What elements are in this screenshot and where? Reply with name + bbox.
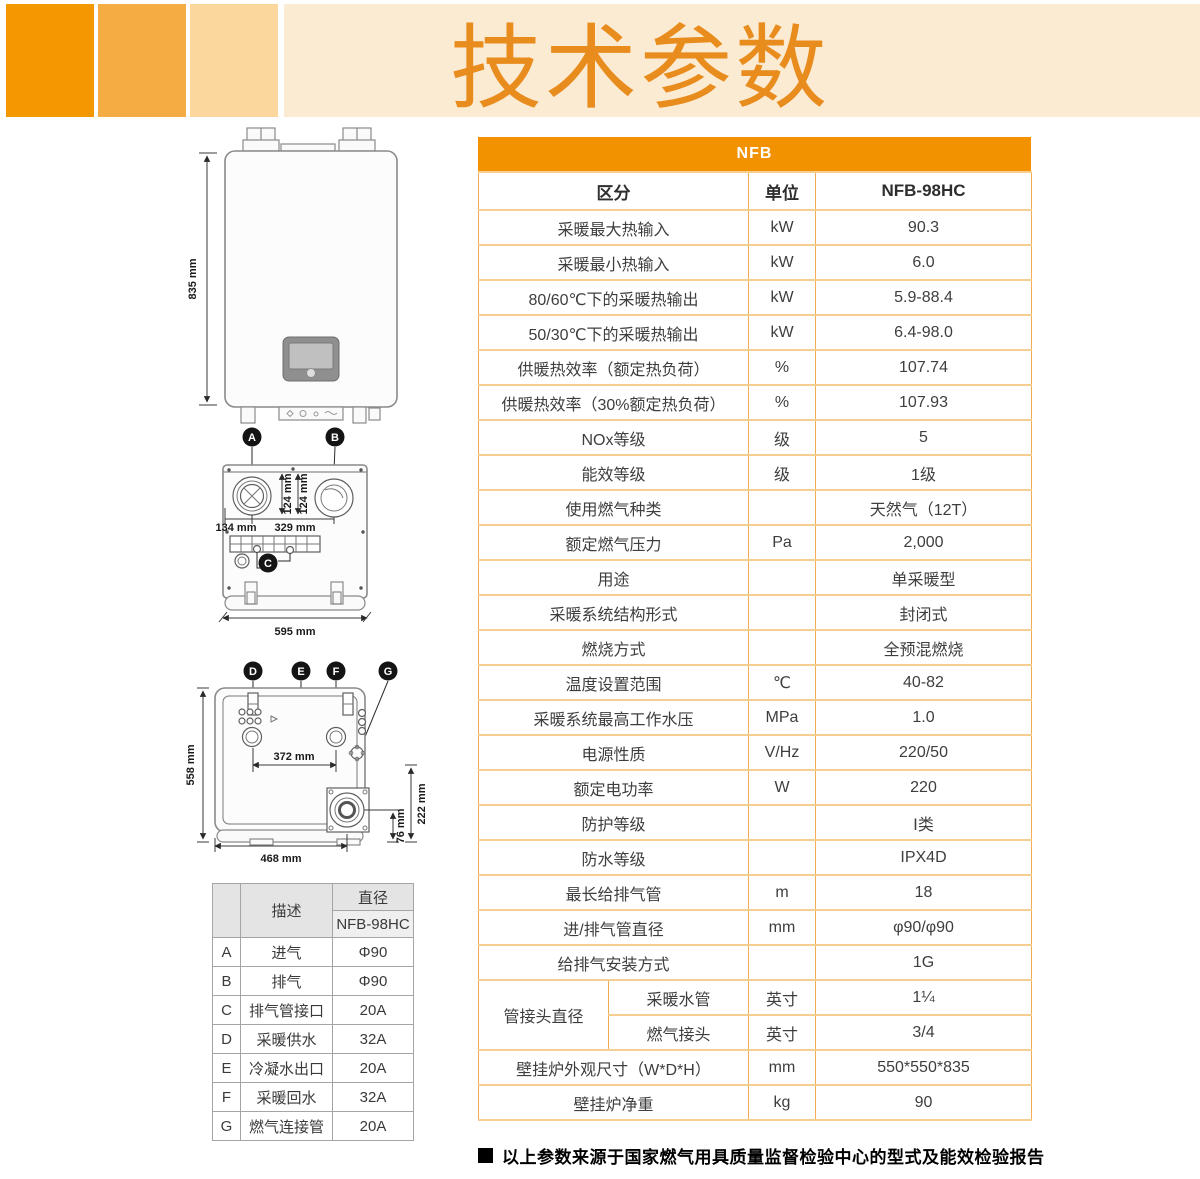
connection-row: D采暖供水32A xyxy=(213,1025,414,1054)
spec-label-cell: 用途 xyxy=(479,560,749,595)
spec-row: 温度设置范围℃40-82 xyxy=(479,665,1032,700)
spec-unit-cell: kg xyxy=(749,1085,816,1120)
spec-row: 80/60℃下的采暖热输出kW5.9-88.4 xyxy=(479,280,1032,315)
conn-desc-cell: 冷凝水出口 xyxy=(241,1054,333,1083)
spec-row: 额定电功率W220 xyxy=(479,770,1032,805)
spec-unit-cell: MPa xyxy=(749,700,816,735)
intake-port xyxy=(233,477,271,515)
spec-label-cell: 温度设置范围 xyxy=(479,665,749,700)
spec-unit-cell: mm xyxy=(749,910,816,945)
exhaust-port xyxy=(315,479,353,517)
spec-label-cell: 供暖热效率（30%额定热负荷） xyxy=(479,385,749,420)
spec-row: 供暖热效率（额定热负荷）%107.74 xyxy=(479,350,1032,385)
spec-value-cell: φ90/φ90 xyxy=(816,910,1032,945)
marker-f-badge: F xyxy=(327,662,346,681)
conn-value-cell: 32A xyxy=(333,1025,414,1054)
conn-header-desc: 描述 xyxy=(241,884,333,938)
conn-key-cell: B xyxy=(213,967,241,996)
spec-row: 采暖最大热输入kW90.3 xyxy=(479,210,1032,245)
conn-desc-cell: 燃气连接管 xyxy=(241,1112,333,1141)
conn-header-model: NFB-98HC xyxy=(333,911,414,938)
spec-row: 50/30℃下的采暖热输出kW6.4-98.0 xyxy=(479,315,1032,350)
spec-value-cell: 6.0 xyxy=(816,245,1032,280)
spec-label-cell: 使用燃气种类 xyxy=(479,490,749,525)
spec-unit-cell xyxy=(749,945,816,980)
spec-unit-cell: kW xyxy=(749,280,816,315)
spec-label-cell: 能效等级 xyxy=(479,455,749,490)
marker-b-badge: B xyxy=(326,428,345,447)
spec-row: 防水等级IPX4D xyxy=(479,840,1032,875)
spec-label-cell: 采暖最小热输入 xyxy=(479,245,749,280)
spec-label-cell: 采暖系统最高工作水压 xyxy=(479,700,749,735)
svg-text:G: G xyxy=(384,666,393,678)
conn-key-cell: G xyxy=(213,1112,241,1141)
spec-group-cell: 管接头直径 xyxy=(479,980,609,1050)
spec-unit-cell xyxy=(749,630,816,665)
footer-note-text: 以上参数来源于国家燃气用具质量监督检验中心的型式及能效检验报告 xyxy=(502,1143,1045,1168)
spec-label-cell: 最长给排气管 xyxy=(479,875,749,910)
condensate-assembly xyxy=(327,788,369,832)
connection-row: C排气管接口20A xyxy=(213,996,414,1025)
spec-row: 管接头直径采暖水管英寸1¼ xyxy=(479,980,1032,1015)
bottom-dim-222: 222 mm xyxy=(416,783,428,824)
spec-unit-cell: ℃ xyxy=(749,665,816,700)
svg-text:D: D xyxy=(249,666,257,678)
spec-label-cell: 进/排气管直径 xyxy=(479,910,749,945)
spec-table-container: NFB 区分 单位 NFB-98HC 采暖最大热输入kW90.3采暖最小热输入k… xyxy=(478,137,1031,1121)
spec-row: 使用燃气种类天然气（12T） xyxy=(479,490,1032,525)
conn-key-cell: F xyxy=(213,1083,241,1112)
display-screen xyxy=(289,343,333,369)
conn-desc-cell: 采暖回水 xyxy=(241,1083,333,1112)
spec-unit-cell: kW xyxy=(749,245,816,280)
conn-header-diameter: 直径 xyxy=(333,884,414,911)
spec-label-cell: 防水等级 xyxy=(479,840,749,875)
spec-label-cell: 采暖系统结构形式 xyxy=(479,595,749,630)
spec-row: 供暖热效率（30%额定热负荷）%107.93 xyxy=(479,385,1032,420)
spec-unit-cell: 级 xyxy=(749,420,816,455)
spec-label-cell: 采暖水管 xyxy=(609,980,749,1015)
spec-label-cell: 防护等级 xyxy=(479,805,749,840)
spec-header-model: NFB-98HC xyxy=(816,172,1032,210)
spec-header-unit: 单位 xyxy=(749,172,816,210)
spec-row: 壁挂炉净重kg90 xyxy=(479,1085,1032,1120)
spec-row: 进/排气管直径mmφ90/φ90 xyxy=(479,910,1032,945)
panel-button xyxy=(307,369,316,378)
front-view-diagram: 835 mm A B xyxy=(187,128,397,447)
svg-text:F: F xyxy=(333,666,340,678)
spec-label-cell: 80/60℃下的采暖热输出 xyxy=(479,280,749,315)
top-view-diagram: 124 mm 124 mm 134 mm 329 mm xyxy=(216,447,371,638)
connection-row: A进气Φ90 xyxy=(213,938,414,967)
spec-label-cell: 燃气接头 xyxy=(609,1015,749,1050)
spec-label-cell: 电源性质 xyxy=(479,735,749,770)
spec-value-cell: IPX4D xyxy=(816,840,1032,875)
conn-key-cell: A xyxy=(213,938,241,967)
spec-unit-cell: % xyxy=(749,350,816,385)
spec-value-cell: 1¼ xyxy=(816,980,1032,1015)
page: 技术参数 xyxy=(0,0,1200,1179)
spec-row: 电源性质V/Hz220/50 xyxy=(479,735,1032,770)
bottom-view-diagram: D E F G xyxy=(185,662,428,866)
spec-label-cell: 壁挂炉外观尺寸（W*D*H） xyxy=(479,1050,749,1085)
spec-row: 最长给排气管m18 xyxy=(479,875,1032,910)
spec-label-cell: 额定燃气压力 xyxy=(479,525,749,560)
spec-header-category: 区分 xyxy=(479,172,749,210)
connection-row: F采暖回水32A xyxy=(213,1083,414,1112)
spec-unit-cell: % xyxy=(749,385,816,420)
spec-value-cell: 单采暖型 xyxy=(816,560,1032,595)
spec-value-cell: 3/4 xyxy=(816,1015,1032,1050)
spec-row: 防护等级Ⅰ类 xyxy=(479,805,1032,840)
spec-value-cell: 5.9-88.4 xyxy=(816,280,1032,315)
footer-note: 以上参数来源于国家燃气用具质量监督检验中心的型式及能效检验报告 xyxy=(478,1143,1045,1168)
conn-value-cell: 20A xyxy=(333,996,414,1025)
connection-table-container: 描述 直径 NFB-98HC A进气Φ90B排气Φ90C排气管接口20AD采暖供… xyxy=(212,883,413,1141)
marker-c-badge: C xyxy=(259,554,278,573)
spec-value-cell: 107.74 xyxy=(816,350,1032,385)
svg-text:B: B xyxy=(331,432,339,444)
spec-unit-cell xyxy=(749,490,816,525)
spec-unit-cell: W xyxy=(749,770,816,805)
spec-unit-cell: 级 xyxy=(749,455,816,490)
svg-text:A: A xyxy=(248,432,256,444)
marker-d-badge: D xyxy=(244,662,263,681)
spec-value-cell: 107.93 xyxy=(816,385,1032,420)
top-dim-595: 595 mm xyxy=(275,626,316,638)
marker-e-badge: E xyxy=(292,662,311,681)
bottom-dim-558: 558 mm xyxy=(185,744,197,785)
spec-label-cell: 采暖最大热输入 xyxy=(479,210,749,245)
spec-label-cell: 额定电功率 xyxy=(479,770,749,805)
connection-table: 描述 直径 NFB-98HC A进气Φ90B排气Φ90C排气管接口20AD采暖供… xyxy=(212,883,414,1141)
spec-row: NOx等级级5 xyxy=(479,420,1032,455)
spec-row: 采暖最小热输入kW6.0 xyxy=(479,245,1032,280)
spec-value-cell: 90.3 xyxy=(816,210,1032,245)
page-title: 技术参数 xyxy=(430,4,850,117)
conn-key-cell: C xyxy=(213,996,241,1025)
spec-value-cell: 封闭式 xyxy=(816,595,1032,630)
spec-row: 给排气安装方式1G xyxy=(479,945,1032,980)
spec-label-cell: 供暖热效率（额定热负荷） xyxy=(479,350,749,385)
spec-label-cell: 壁挂炉净重 xyxy=(479,1085,749,1120)
conn-desc-cell: 排气 xyxy=(241,967,333,996)
spec-unit-cell: mm xyxy=(749,1050,816,1085)
spec-value-cell: 6.4-98.0 xyxy=(816,315,1032,350)
spec-row: 燃烧方式全预混燃烧 xyxy=(479,630,1032,665)
return-port xyxy=(327,728,346,747)
conn-desc-cell: 排气管接口 xyxy=(241,996,333,1025)
spec-unit-cell: Pa xyxy=(749,525,816,560)
top-dim-134: 134 mm xyxy=(216,522,257,534)
banner-block-dark xyxy=(6,4,94,117)
connection-table-body: A进气Φ90B排气Φ90C排气管接口20AD采暖供水32AE冷凝水出口20AF采… xyxy=(213,938,414,1141)
spec-value-cell: 5 xyxy=(816,420,1032,455)
spec-value-cell: 40-82 xyxy=(816,665,1032,700)
connection-row: B排气Φ90 xyxy=(213,967,414,996)
conn-value-cell: 20A xyxy=(333,1112,414,1141)
banner-block-mid xyxy=(98,4,186,117)
conn-desc-cell: 采暖供水 xyxy=(241,1025,333,1054)
spec-value-cell: 天然气（12T） xyxy=(816,490,1032,525)
marker-g-badge: G xyxy=(379,662,398,681)
spec-table: 区分 单位 NFB-98HC 采暖最大热输入kW90.3采暖最小热输入kW6.0… xyxy=(478,171,1032,1121)
top-dim-329: 329 mm xyxy=(275,522,316,534)
conn-value-cell: Φ90 xyxy=(333,938,414,967)
spec-row: 能效等级级1级 xyxy=(479,455,1032,490)
spec-row: 采暖系统最高工作水压MPa1.0 xyxy=(479,700,1032,735)
bottom-dim-468: 468 mm xyxy=(261,853,302,865)
spec-value-cell: 1级 xyxy=(816,455,1032,490)
spec-unit-cell: 英寸 xyxy=(749,980,816,1015)
spec-value-cell: Ⅰ类 xyxy=(816,805,1032,840)
spec-row: 额定燃气压力Pa2,000 xyxy=(479,525,1032,560)
banner-block-light xyxy=(190,4,278,117)
front-height-dim: 835 mm xyxy=(187,258,199,299)
conn-header-blank xyxy=(213,884,241,938)
conn-value-cell: 32A xyxy=(333,1083,414,1112)
vent-grille xyxy=(230,536,320,552)
spec-table-body: 采暖最大热输入kW90.3采暖最小热输入kW6.080/60℃下的采暖热输出kW… xyxy=(479,210,1032,1120)
spec-value-cell: 1.0 xyxy=(816,700,1032,735)
conn-key-cell: E xyxy=(213,1054,241,1083)
conn-desc-cell: 进气 xyxy=(241,938,333,967)
spec-unit-cell: V/Hz xyxy=(749,735,816,770)
drain-fitting xyxy=(235,554,249,568)
spec-row: 采暖系统结构形式封闭式 xyxy=(479,595,1032,630)
svg-text:E: E xyxy=(297,666,304,678)
spec-unit-cell: m xyxy=(749,875,816,910)
svg-text:C: C xyxy=(264,558,272,570)
top-dim-124b: 124 mm xyxy=(298,473,310,514)
spec-unit-cell xyxy=(749,805,816,840)
conn-value-cell: Φ90 xyxy=(333,967,414,996)
connection-row: E冷凝水出口20A xyxy=(213,1054,414,1083)
spec-row: 用途单采暖型 xyxy=(479,560,1032,595)
spec-label-cell: 燃烧方式 xyxy=(479,630,749,665)
spec-value-cell: 220/50 xyxy=(816,735,1032,770)
spec-label-cell: 给排气安装方式 xyxy=(479,945,749,980)
spec-value-cell: 220 xyxy=(816,770,1032,805)
marker-a-badge: A xyxy=(243,428,262,447)
spec-unit-cell: 英寸 xyxy=(749,1015,816,1050)
top-dim-124a: 124 mm xyxy=(282,473,294,514)
spec-value-cell: 18 xyxy=(816,875,1032,910)
spec-value-cell: 90 xyxy=(816,1085,1032,1120)
spec-unit-cell xyxy=(749,840,816,875)
spec-table-band: NFB xyxy=(478,137,1031,171)
connector-cluster-right xyxy=(359,710,366,735)
supply-port xyxy=(243,728,262,747)
connection-row: G燃气连接管20A xyxy=(213,1112,414,1141)
spec-unit-cell: kW xyxy=(749,210,816,245)
note-bullet-icon xyxy=(478,1148,493,1163)
spec-label-cell: 50/30℃下的采暖热输出 xyxy=(479,315,749,350)
spec-value-cell: 550*550*835 xyxy=(816,1050,1032,1085)
spec-value-cell: 2,000 xyxy=(816,525,1032,560)
spec-unit-cell xyxy=(749,560,816,595)
conn-value-cell: 20A xyxy=(333,1054,414,1083)
product-diagrams: 835 mm A B xyxy=(183,120,443,890)
spec-unit-cell: kW xyxy=(749,315,816,350)
conn-key-cell: D xyxy=(213,1025,241,1054)
spec-label-cell: NOx等级 xyxy=(479,420,749,455)
spec-unit-cell xyxy=(749,595,816,630)
spec-row: 壁挂炉外观尺寸（W*D*H）mm550*550*835 xyxy=(479,1050,1032,1085)
spec-value-cell: 全预混燃烧 xyxy=(816,630,1032,665)
bottom-dim-76: 76 mm xyxy=(395,808,407,843)
bottom-dim-372: 372 mm xyxy=(274,751,315,763)
spec-value-cell: 1G xyxy=(816,945,1032,980)
